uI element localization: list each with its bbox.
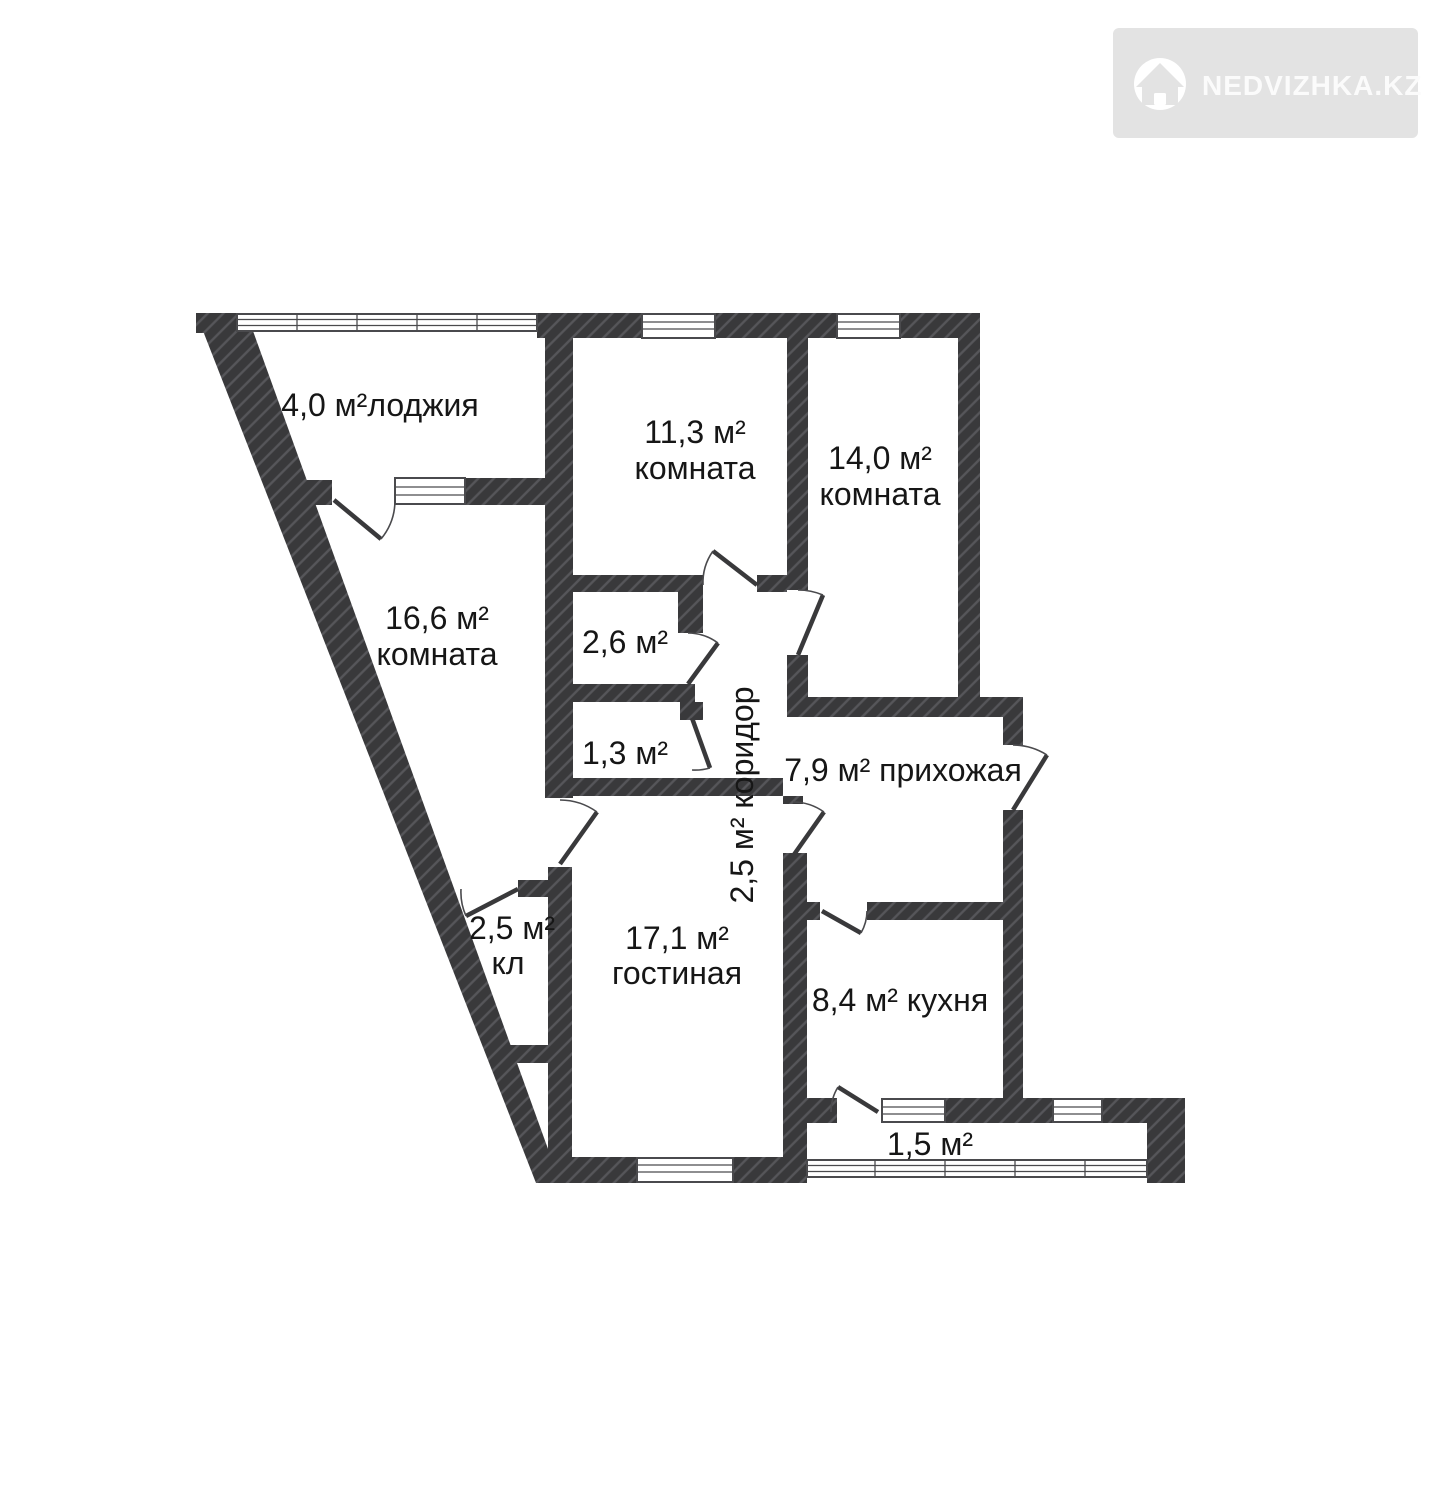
door-bedroom-1 (703, 551, 757, 585)
wall-segment (867, 902, 1023, 920)
door-arc (861, 911, 867, 933)
wall-segment (787, 697, 1023, 717)
room-label-living-room-name: гостиная (612, 955, 742, 991)
wall-segment (1003, 717, 1023, 745)
wall-segment (545, 313, 573, 798)
room-label-bedroom-3-name: комната (376, 636, 497, 672)
window-frame (807, 1160, 1147, 1177)
house-icon-door (1154, 93, 1166, 105)
room-label-bathroom: 2,6 м² (582, 624, 668, 660)
room-label-bedroom-1-area: 11,3 м² (644, 414, 746, 450)
room-label-closet-name: кл (491, 945, 524, 981)
room-label-closet-area: 2,5 м² (469, 910, 555, 946)
door-leaf (822, 911, 861, 933)
window-balcony-front (807, 1160, 1147, 1177)
door-bathroom (688, 633, 718, 684)
wall-segment (573, 575, 703, 592)
room-label-living-room-area: 17,1 м² (625, 920, 729, 956)
door-arc (798, 590, 823, 595)
door-arc (688, 633, 718, 643)
room-label-loggia: 4,0 м²лоджия (281, 387, 478, 423)
window-loggia-front (237, 314, 537, 331)
door-leaf (688, 643, 718, 684)
window-frame (1053, 1099, 1102, 1122)
door-leaf (560, 812, 597, 864)
floor-plan-svg: NEDVIZHKA.KZ (0, 0, 1440, 1488)
door-bedroom-2 (798, 590, 823, 655)
wall-segment (787, 338, 808, 590)
watermark-logo: NEDVIZHKA.KZ (1113, 28, 1422, 138)
room-label-bedroom-3-area: 16,6 м² (385, 600, 489, 636)
door-arc (692, 768, 710, 770)
wall-segment (196, 313, 552, 1183)
wall-segment (958, 336, 980, 717)
wall-segment (1147, 1098, 1185, 1183)
window-frame (395, 478, 465, 504)
door-loggia (334, 500, 395, 539)
room-label-hallway: 7,9 м² прихожая (784, 752, 1022, 788)
wall-segment (715, 313, 837, 338)
door-balcony (831, 1087, 878, 1112)
door-leaf (798, 595, 823, 655)
window-frame (637, 1158, 733, 1182)
wall-segment (900, 313, 980, 338)
wall-segment (518, 880, 548, 897)
page: NEDVIZHKA.KZ (0, 0, 1440, 1488)
wall-segment (465, 478, 573, 505)
door-leaf (692, 718, 710, 768)
door-leaf (334, 500, 381, 539)
door-leaf (838, 1087, 878, 1112)
window-bedroom-1 (642, 314, 715, 338)
room-label-kitchen: 8,4 м² кухня (812, 982, 988, 1018)
window-living-room (637, 1158, 733, 1182)
wall-segment (678, 592, 703, 633)
wall-segment (787, 655, 808, 717)
window-kitchen-b (1053, 1099, 1102, 1122)
room-label-bedroom-1-name: комната (634, 450, 755, 486)
door-leaf (713, 551, 757, 585)
door-living-room (793, 802, 824, 856)
window-kitchen-a (882, 1099, 945, 1122)
window-frame (882, 1099, 945, 1122)
door-leaf (793, 812, 824, 856)
door-bedroom-3 (560, 800, 597, 864)
door-arc (560, 800, 597, 812)
wall-segment (573, 684, 695, 702)
wall-segment (680, 702, 703, 720)
wall-segment (573, 313, 642, 338)
room-label-corridor: 2,5 м² коридор (724, 686, 760, 903)
door-wc (692, 718, 710, 770)
window-bedroom-2 (837, 314, 900, 338)
door-kitchen (822, 911, 867, 933)
room-label-wc: 1,3 м² (582, 735, 668, 771)
window-loggia-inner (395, 478, 465, 504)
wall-segment (290, 480, 332, 505)
window-frame (837, 314, 900, 338)
window-frame (642, 314, 715, 338)
watermark-brand: NEDVIZHKA.KZ (1202, 70, 1422, 101)
room-label-bedroom-2-name: комната (819, 476, 940, 512)
window-frame (237, 314, 537, 331)
wall-segment (1003, 810, 1023, 1098)
wall-segment (783, 853, 807, 1183)
wall-segment (1102, 1098, 1147, 1123)
wall-segment (540, 1157, 637, 1183)
room-label-balcony: 1,5 м² (887, 1126, 973, 1162)
door-arc (703, 551, 713, 585)
wall-segment (505, 1045, 548, 1063)
wall-segment (945, 1098, 1053, 1123)
door-arc (381, 500, 395, 539)
room-label-bedroom-2-area: 14,0 м² (828, 440, 932, 476)
wall-segment (757, 575, 787, 592)
wall-segment (196, 313, 240, 333)
